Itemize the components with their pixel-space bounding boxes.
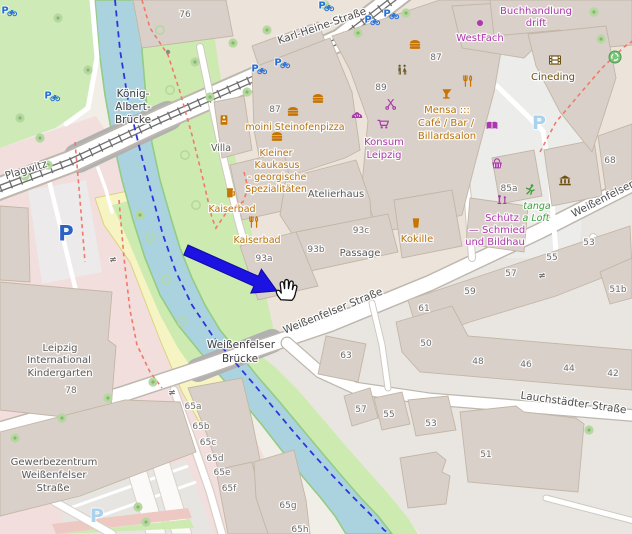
map-label: Leipzig: [42, 343, 77, 354]
tree-icon: [57, 413, 66, 422]
svg-text:P: P: [58, 222, 73, 246]
map-label: König-: [117, 88, 150, 100]
tree-icon: [589, 7, 598, 16]
svg-text:P: P: [90, 505, 104, 527]
map-label: Villa: [211, 143, 231, 154]
tree-icon: [133, 502, 142, 511]
recycling-icon: [609, 51, 621, 63]
map-label: 89: [375, 83, 387, 93]
map-label: Kaiserbad: [233, 235, 280, 246]
map-label: drift: [526, 18, 547, 29]
tree-icon: [83, 65, 92, 74]
tree-icon: [135, 210, 144, 219]
map-label: Gewerbezentrum: [11, 457, 98, 468]
map-label: 78: [65, 386, 77, 396]
map-svg: PPPPPPPPPP≠≠≠ Karl-Heine-StraßePlagwitzK…: [0, 0, 632, 534]
map-label: 44: [563, 364, 575, 374]
map-label: 51b: [609, 285, 626, 295]
map-label: 63: [340, 351, 351, 361]
fast-food-icon: [272, 132, 282, 141]
map-label: Leipzig: [366, 150, 401, 161]
tree-icon: [584, 425, 593, 434]
svg-text:≠: ≠: [168, 388, 176, 398]
map-label: Straße: [37, 483, 70, 494]
map-label: 57: [505, 269, 516, 279]
fast-food-icon: [410, 40, 420, 49]
map-label: International: [27, 355, 91, 366]
svg-text:P: P: [383, 9, 390, 20]
svg-text:P: P: [318, 1, 325, 12]
map-label: Buchhandlung: [500, 6, 572, 17]
map-label: Kindergarten: [27, 368, 92, 379]
svg-text:P: P: [532, 112, 546, 134]
map-label: 65b: [192, 422, 209, 432]
map-label: 93b: [307, 245, 324, 255]
map-label: 46: [520, 360, 532, 370]
map-label: 65a: [185, 402, 202, 412]
map-label: 51: [480, 450, 491, 460]
map-label: Cineding: [531, 72, 575, 83]
parking-faded-icon: P: [90, 505, 104, 527]
map-label: a Loft: [522, 213, 550, 224]
map-label: Kleiner: [259, 148, 292, 159]
svg-text:P: P: [274, 58, 281, 69]
map-label: Albert-: [115, 101, 151, 113]
svg-text:P: P: [1, 6, 8, 17]
map-label: 76: [179, 10, 191, 20]
parking-faded-icon: P: [532, 112, 546, 134]
map-label: 65h: [291, 525, 308, 534]
fast-food-icon: [313, 94, 323, 103]
map-label: Atelierhaus: [308, 189, 364, 200]
tree-icon: [262, 25, 271, 34]
gate-icon: ≠: [538, 271, 546, 281]
svg-text:P: P: [44, 91, 51, 102]
map-label: - georgische: [248, 172, 307, 183]
map-label: 85a: [501, 184, 518, 194]
tree-icon: [401, 8, 410, 17]
map-label: 65g: [279, 501, 296, 511]
gate-icon: ≠: [168, 388, 176, 398]
vending-machine-icon: [221, 115, 228, 125]
svg-text:≠: ≠: [538, 271, 546, 281]
map-label: 93a: [256, 254, 273, 264]
map-label: Kokille: [401, 234, 433, 245]
svg-text:≠: ≠: [109, 255, 117, 265]
map-label: 65e: [214, 468, 231, 478]
map-label: 53: [583, 238, 594, 248]
cinema-icon: [549, 55, 561, 64]
tree-icon: [148, 377, 157, 386]
tree-icon: [353, 28, 362, 37]
fast-food-icon: [288, 107, 298, 116]
map-label: 42: [607, 369, 618, 379]
map-label: 53: [425, 419, 436, 429]
map-label: 65f: [222, 484, 237, 494]
node-dot-icon: [166, 50, 170, 54]
map-label: Brücke: [222, 353, 258, 365]
gate-icon: ≠: [109, 255, 117, 265]
books-icon: [487, 122, 498, 129]
tree-icon: [35, 133, 44, 142]
map-label: 57: [355, 405, 366, 415]
map-label: Brücke: [115, 114, 151, 126]
tree-icon: [15, 113, 24, 122]
map-label: Café / Bar /: [418, 117, 475, 129]
map-label: Spezialitäten: [245, 184, 307, 195]
tree-icon: [103, 393, 112, 402]
tree-icon: [53, 13, 62, 22]
tree-icon: [141, 517, 150, 526]
tree-icon: [228, 38, 237, 47]
map-label: 50: [420, 339, 432, 349]
parking-icon: P: [58, 222, 73, 246]
map-label: 61: [418, 304, 429, 314]
map-label: — Schmied: [469, 225, 525, 236]
tree-icon: [205, 92, 214, 101]
map-label: tanga: [523, 201, 551, 212]
pub-icon: [413, 218, 419, 227]
map-label: 68: [604, 156, 616, 166]
map-label: 55: [383, 410, 394, 420]
map-label: Passage: [340, 248, 381, 259]
map-canvas[interactable]: PPPPPPPPPP≠≠≠ Karl-Heine-StraßePlagwitzK…: [0, 0, 632, 534]
map-label: WestFach: [456, 33, 503, 44]
map-label: 55: [546, 253, 557, 263]
map-label: Kaiserbad: [208, 204, 255, 215]
map-label: 48: [472, 357, 484, 367]
tree-icon: [10, 433, 19, 442]
map-label: Kaukasus: [255, 160, 300, 171]
tree-icon: [190, 57, 199, 66]
map-label: Mensa :::: [424, 105, 470, 116]
tree-icon: [596, 34, 605, 43]
map-label: 59: [464, 287, 476, 297]
svg-text:P: P: [251, 64, 258, 75]
tree-icon: [242, 87, 251, 96]
map-label: Weißenfelser: [207, 339, 276, 351]
poi-dot-icon: [477, 20, 483, 26]
map-label: Billardsalon: [418, 131, 476, 142]
map-label: Weißenfelser: [22, 470, 88, 481]
map-label: Konsum: [364, 137, 404, 148]
map-label: moini Steinofenpizza: [245, 122, 344, 133]
map-label: Schütz: [485, 213, 519, 224]
map-label: 65c: [200, 438, 216, 448]
map-label: 87: [269, 105, 280, 115]
map-label: 93c: [353, 226, 369, 236]
map-label: 87: [430, 53, 441, 63]
map-label: 65d: [206, 454, 223, 464]
map-label: und Bildhau: [465, 237, 525, 248]
